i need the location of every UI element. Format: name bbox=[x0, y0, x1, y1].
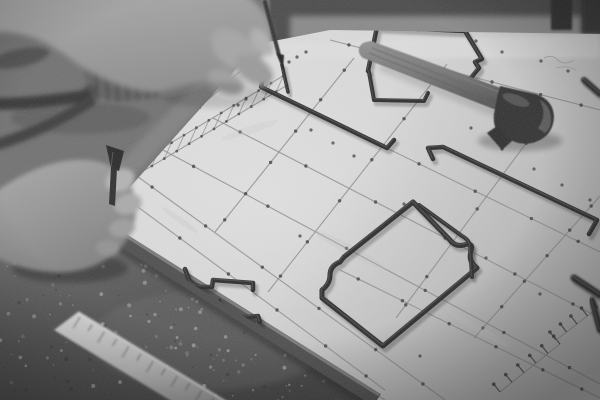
vignette bbox=[0, 0, 600, 400]
photo-stage bbox=[0, 0, 600, 400]
workshop-photo bbox=[0, 0, 600, 400]
